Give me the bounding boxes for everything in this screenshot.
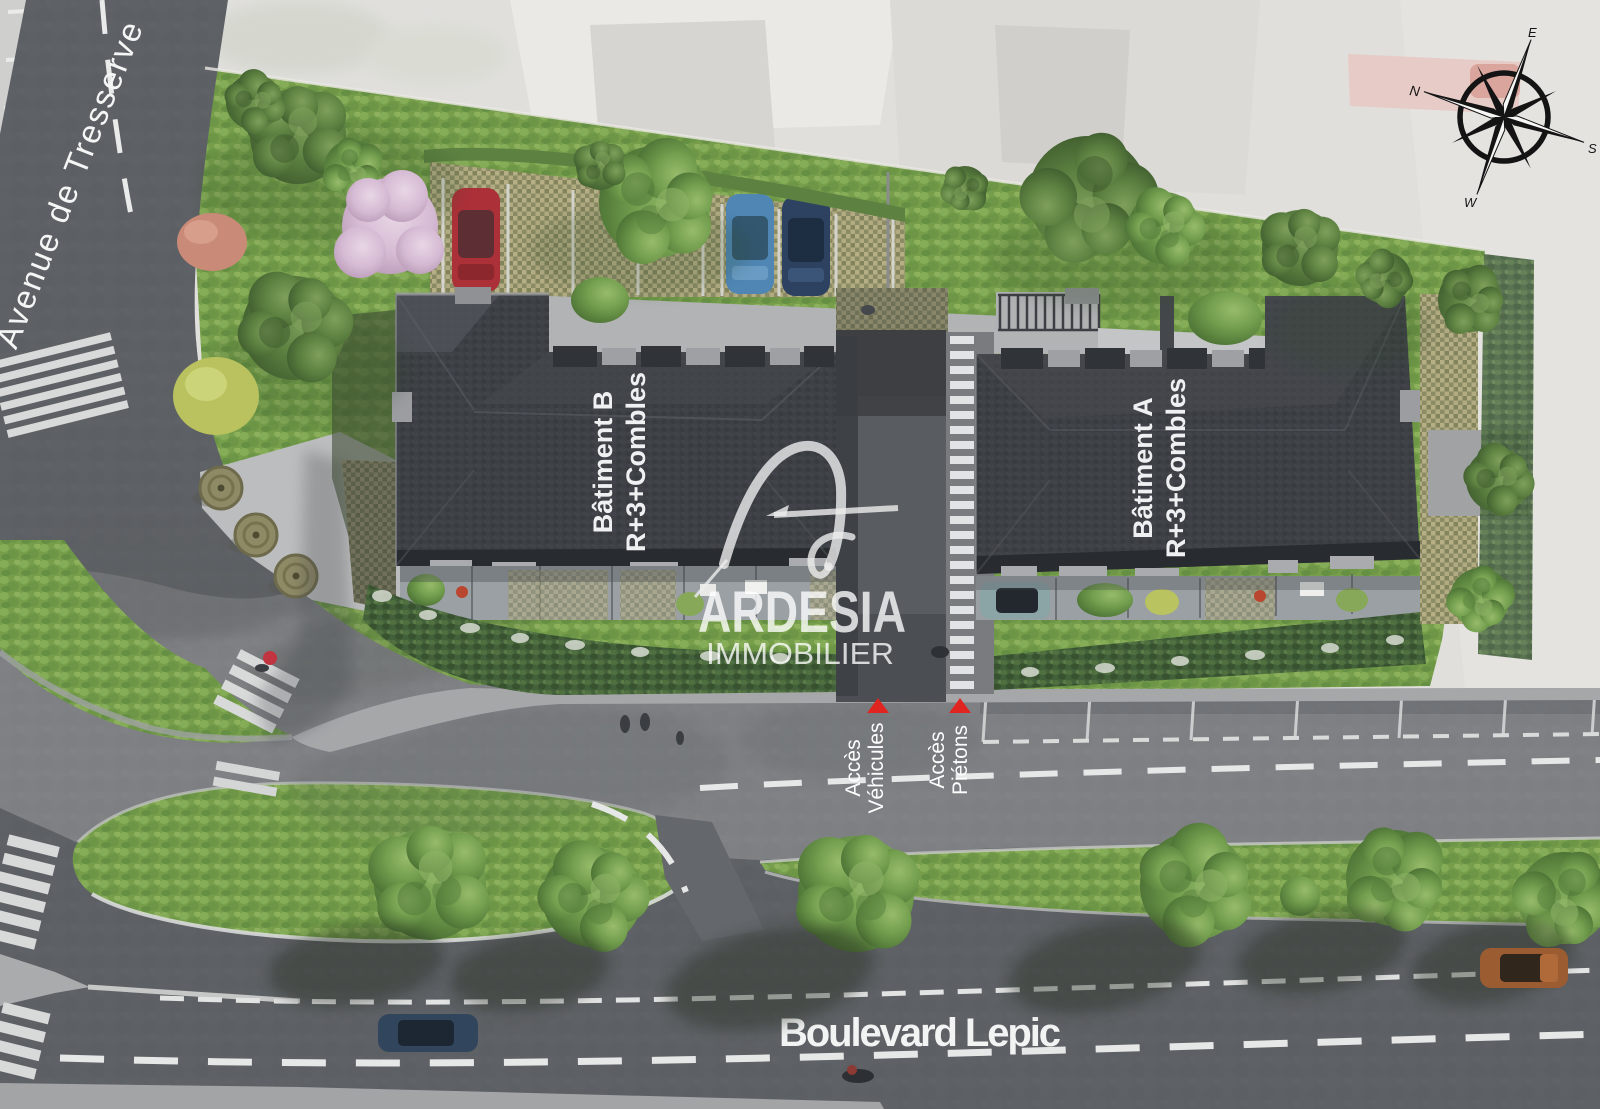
svg-text:Bâtiment B: Bâtiment B [588,391,618,534]
svg-text:R+3+Combles: R+3+Combles [621,372,651,552]
svg-text:Véhicules: Véhicules [865,722,888,813]
svg-text:Boulevard Lepic: Boulevard Lepic [779,1011,1061,1055]
svg-text:Bâtiment A: Bâtiment A [1128,397,1158,539]
svg-text:S: S [1588,141,1597,156]
svg-text:E: E [1528,25,1537,40]
svg-text:Accès: Accès [842,739,865,796]
svg-text:W: W [1464,195,1478,210]
svg-text:R+3+Combles: R+3+Combles [1161,378,1191,558]
svg-text:Piétons: Piétons [949,725,972,795]
svg-text:IMMOBILIER: IMMOBILIER [706,636,894,671]
svg-text:Accès: Accès [926,731,949,788]
